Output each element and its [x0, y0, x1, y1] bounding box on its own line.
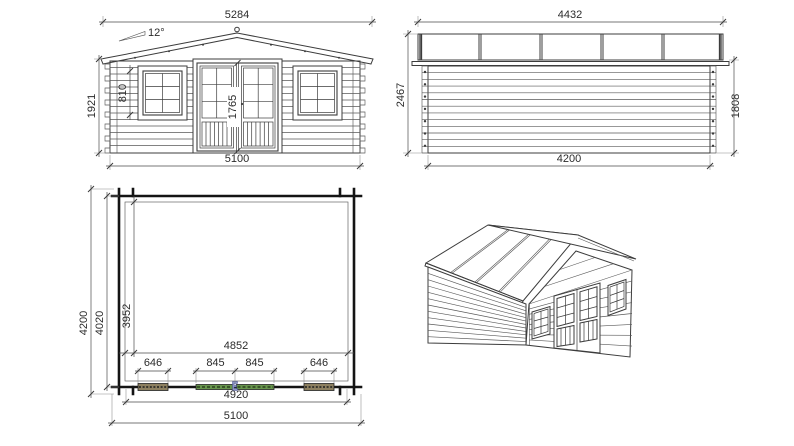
blueprint-canvas: 5284 12° 810	[0, 0, 794, 446]
inner-wall-faces	[125, 202, 348, 381]
window-left-3d	[532, 307, 550, 340]
dim-front-door-height: 1765	[227, 95, 239, 119]
perspective-view	[408, 195, 688, 410]
front-elevation-view: 5284 12° 810	[85, 3, 385, 181]
dim-front-roof-angle: 12°	[148, 27, 165, 39]
side-elevation-view: 4432 2467 1808 4200	[393, 3, 748, 181]
front-window-right	[293, 66, 342, 120]
dim-plan-door-right: 845	[245, 357, 263, 369]
plan-window-left	[138, 384, 168, 391]
dim-front-wall-height: 1921	[86, 94, 98, 118]
window-right-3d	[608, 280, 626, 316]
dim-plan-outer-depth: 4020	[94, 311, 106, 335]
dim-plan-overall-width: 5100	[224, 410, 248, 422]
dim-front-roof-width: 5284	[225, 9, 249, 21]
dim-plan-window-right: 646	[310, 357, 328, 369]
dim-plan-door-left: 845	[206, 357, 224, 369]
dim-front-window-height: 810	[117, 84, 129, 102]
log-end-dots	[424, 71, 714, 147]
plan-window-right	[304, 384, 334, 391]
dim-plan-inner-width: 4852	[224, 340, 248, 352]
dim-side-wall-depth: 4200	[557, 153, 581, 165]
floor-plan-view: 4852 646 845 845 646 4200 4020 3952 4920…	[80, 183, 375, 445]
front-window-left	[138, 66, 187, 120]
roof-panels	[418, 34, 723, 60]
dim-side-wall-height: 1808	[730, 94, 742, 118]
roof-angle-wedge	[119, 32, 145, 42]
dim-side-roof-depth: 4432	[558, 9, 582, 21]
dim-plan-inner-depth: 3952	[121, 304, 133, 328]
log-end-tabs-right	[360, 64, 365, 153]
dim-plan-overall-depth: 4200	[78, 311, 90, 335]
eave-fascia	[412, 62, 729, 66]
dim-front-wall-width: 5100	[225, 153, 249, 165]
dim-plan-wall-width: 4920	[224, 389, 248, 401]
dim-side-overall-height: 2467	[395, 83, 407, 107]
roof-apex-finial	[235, 27, 240, 32]
log-end-tabs-left	[105, 64, 110, 153]
dim-plan-window-left: 646	[144, 357, 162, 369]
side-log-lines	[422, 73, 716, 147]
extension-lines	[91, 189, 119, 394]
